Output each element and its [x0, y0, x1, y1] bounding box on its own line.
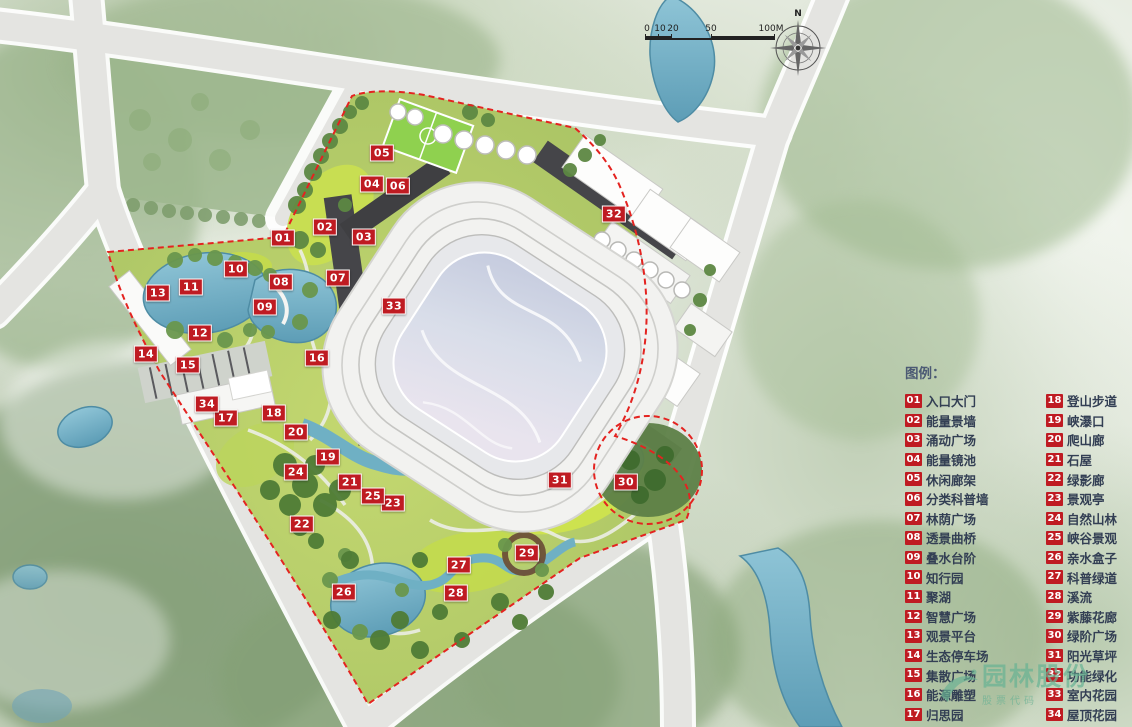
legend-item-label: 知行园	[926, 568, 964, 587]
legend-item-05: 05休闲廊架	[905, 469, 1046, 489]
legend-item-number: 09	[905, 551, 922, 565]
legend-item-number: 34	[1046, 708, 1063, 722]
legend-item-number: 03	[905, 433, 922, 447]
legend-item-34: 34屋顶花园	[1046, 705, 1131, 725]
legend-item-number: 17	[905, 708, 922, 722]
legend-item-15: 15集散广场	[905, 665, 1046, 685]
legend-item-number: 28	[1046, 590, 1063, 604]
legend-item-number: 18	[1046, 394, 1063, 408]
scale-bar-tick	[658, 34, 659, 40]
legend-item-number: 07	[905, 512, 922, 526]
legend-item-10: 10知行园	[905, 567, 1046, 587]
legend-item-label: 景观亭	[1067, 489, 1105, 508]
legend-item-label: 能量镜池	[926, 450, 976, 469]
legend-item-label: 智慧广场	[926, 607, 976, 626]
map-marker-01: 01	[271, 230, 295, 247]
legend-panel: 图例： 01入口大门02能量景墙03涌动广场04能量镜池05休闲廊架06分类科普…	[905, 362, 1131, 724]
legend-item-number: 05	[905, 472, 922, 486]
legend-item-number: 31	[1046, 649, 1063, 663]
legend-item-label: 能量景墙	[926, 411, 976, 430]
legend-item-32: 32功能绿化	[1046, 665, 1131, 685]
legend-item-11: 11聚湖	[905, 587, 1046, 607]
legend-item-label: 登山步道	[1067, 391, 1117, 410]
scale-bar-tick	[671, 34, 672, 40]
legend-item-04: 04能量镜池	[905, 450, 1046, 470]
legend-item-label: 入口大门	[926, 391, 976, 410]
legend-item-06: 06分类科普墙	[905, 489, 1046, 509]
map-marker-16: 16	[305, 350, 329, 367]
scale-label: 10	[654, 24, 665, 34]
legend-item-label: 涌动广场	[926, 430, 976, 449]
legend-item-30: 30绿阶广场	[1046, 626, 1131, 646]
legend-item-number: 33	[1046, 688, 1063, 702]
compass-rose: N	[765, 6, 831, 84]
legend-item-number: 14	[905, 649, 922, 663]
legend-item-label: 峡瀑口	[1067, 411, 1105, 430]
map-marker-18: 18	[262, 405, 286, 422]
legend-item-27: 27科普绿道	[1046, 567, 1131, 587]
legend-item-01: 01入口大门	[905, 391, 1046, 411]
masterplan-canvas: 0 10 20 50 100M N	[0, 0, 1132, 727]
legend-item-24: 24自然山林	[1046, 509, 1131, 529]
legend-item-09: 09叠水台阶	[905, 548, 1046, 568]
legend-item-number: 26	[1046, 551, 1063, 565]
legend-item-label: 绿影廊	[1067, 470, 1105, 489]
compass-icon: N	[765, 6, 831, 80]
legend-item-08: 08透景曲桥	[905, 528, 1046, 548]
legend-item-number: 27	[1046, 570, 1063, 584]
map-marker-06: 06	[386, 178, 410, 195]
legend-item-label: 室内花园	[1067, 685, 1117, 704]
scale-label: 0	[644, 24, 650, 34]
legend-item-number: 30	[1046, 629, 1063, 643]
legend-item-26: 26亲水盒子	[1046, 548, 1131, 568]
legend-item-number: 15	[905, 668, 922, 682]
scale-bar: 0 10 20 50 100M	[645, 24, 781, 46]
legend-item-17: 17归思园	[905, 705, 1046, 725]
legend-item-label: 休闲廊架	[926, 470, 976, 489]
legend-item-28: 28溪流	[1046, 587, 1131, 607]
map-marker-05: 05	[370, 145, 394, 162]
legend-item-14: 14生态停车场	[905, 646, 1046, 666]
legend-item-number: 01	[905, 394, 922, 408]
legend-item-07: 07林荫广场	[905, 509, 1046, 529]
legend-item-label: 观景平台	[926, 626, 976, 645]
map-marker-34: 34	[195, 396, 219, 413]
map-marker-27: 27	[447, 557, 471, 574]
legend-item-number: 22	[1046, 472, 1063, 486]
legend-item-label: 亲水盒子	[1067, 548, 1117, 567]
legend-item-number: 06	[905, 492, 922, 506]
legend-item-label: 归思园	[926, 705, 964, 724]
legend-item-label: 叠水台阶	[926, 548, 976, 567]
legend-item-number: 19	[1046, 414, 1063, 428]
legend-column-right: 18登山步道19峡瀑口20爬山廊21石屋22绿影廊23景观亭24自然山林25峡谷…	[1046, 391, 1131, 724]
map-marker-14: 14	[134, 346, 158, 363]
legend-item-12: 12智慧广场	[905, 607, 1046, 627]
legend-item-label: 峡谷景观	[1067, 528, 1117, 547]
legend-item-21: 21石屋	[1046, 450, 1131, 470]
map-marker-31: 31	[548, 472, 572, 489]
legend-item-number: 12	[905, 610, 922, 624]
legend-item-20: 20爬山廊	[1046, 430, 1131, 450]
legend-item-13: 13观景平台	[905, 626, 1046, 646]
map-marker-07: 07	[326, 270, 350, 287]
map-marker-02: 02	[313, 219, 337, 236]
legend-item-label: 屋顶花园	[1067, 705, 1117, 724]
map-marker-04: 04	[360, 176, 384, 193]
legend-item-label: 聚湖	[926, 587, 951, 606]
legend-item-number: 08	[905, 531, 922, 545]
map-marker-25: 25	[361, 488, 385, 505]
map-marker-09: 09	[253, 299, 277, 316]
map-marker-19: 19	[316, 449, 340, 466]
legend-item-number: 25	[1046, 531, 1063, 545]
map-marker-30: 30	[614, 474, 638, 491]
map-marker-29: 29	[515, 545, 539, 562]
legend-item-label: 自然山林	[1067, 509, 1117, 528]
map-marker-13: 13	[146, 285, 170, 302]
legend-item-02: 02能量景墙	[905, 411, 1046, 431]
legend-item-23: 23景观亭	[1046, 489, 1131, 509]
legend-item-label: 林荫广场	[926, 509, 976, 528]
legend-column-left: 01入口大门02能量景墙03涌动广场04能量镜池05休闲廊架06分类科普墙07林…	[905, 391, 1046, 724]
map-marker-11: 11	[179, 279, 203, 296]
legend-item-label: 透景曲桥	[926, 528, 976, 547]
legend-item-number: 16	[905, 688, 922, 702]
legend-item-number: 11	[905, 590, 922, 604]
legend-item-label: 生态停车场	[926, 646, 989, 665]
legend-item-19: 19峡瀑口	[1046, 411, 1131, 431]
legend-item-03: 03涌动广场	[905, 430, 1046, 450]
legend-item-number: 29	[1046, 610, 1063, 624]
legend-title: 图例：	[905, 362, 1131, 382]
legend-item-number: 10	[905, 570, 922, 584]
legend-item-label: 爬山廊	[1067, 430, 1105, 449]
map-marker-10: 10	[224, 261, 248, 278]
legend-item-31: 31阳光草坪	[1046, 646, 1131, 666]
legend-item-label: 功能绿化	[1067, 666, 1117, 685]
legend-item-label: 能源雕塑	[926, 685, 976, 704]
compass-north-label: N	[794, 9, 802, 19]
legend-item-number: 24	[1046, 512, 1063, 526]
legend-item-22: 22绿影廊	[1046, 469, 1131, 489]
map-marker-28: 28	[444, 585, 468, 602]
legend-item-label: 溪流	[1067, 587, 1092, 606]
legend-item-number: 02	[905, 414, 922, 428]
legend-item-label: 绿阶广场	[1067, 626, 1117, 645]
legend-item-number: 32	[1046, 668, 1063, 682]
legend-columns: 01入口大门02能量景墙03涌动广场04能量镜池05休闲廊架06分类科普墙07林…	[905, 391, 1131, 724]
map-marker-12: 12	[188, 325, 212, 342]
map-marker-03: 03	[352, 229, 376, 246]
legend-item-number: 20	[1046, 433, 1063, 447]
legend-item-label: 阳光草坪	[1067, 646, 1117, 665]
map-marker-24: 24	[284, 464, 308, 481]
map-marker-26: 26	[332, 584, 356, 601]
scale-label: 20	[667, 24, 678, 34]
map-marker-15: 15	[176, 357, 200, 374]
map-marker-22: 22	[290, 516, 314, 533]
legend-item-number: 04	[905, 453, 922, 467]
map-marker-32: 32	[602, 206, 626, 223]
map-marker-08: 08	[269, 274, 293, 291]
legend-item-16: 16能源雕塑	[905, 685, 1046, 705]
legend-item-number: 13	[905, 629, 922, 643]
legend-item-number: 23	[1046, 492, 1063, 506]
legend-item-number: 21	[1046, 453, 1063, 467]
legend-item-18: 18登山步道	[1046, 391, 1131, 411]
map-marker-21: 21	[338, 474, 362, 491]
legend-item-label: 紫藤花廊	[1067, 607, 1117, 626]
legend-item-29: 29紫藤花廊	[1046, 607, 1131, 627]
scale-label: 50	[705, 24, 716, 34]
map-marker-33: 33	[382, 298, 406, 315]
legend-item-label: 集散广场	[926, 666, 976, 685]
legend-item-33: 33室内花园	[1046, 685, 1131, 705]
legend-item-label: 石屋	[1067, 450, 1092, 469]
legend-item-label: 分类科普墙	[926, 489, 989, 508]
legend-item-label: 科普绿道	[1067, 568, 1117, 587]
map-marker-20: 20	[284, 424, 308, 441]
scale-bar-tick	[711, 34, 712, 40]
scale-bar-tick	[645, 34, 646, 40]
legend-item-25: 25峡谷景观	[1046, 528, 1131, 548]
